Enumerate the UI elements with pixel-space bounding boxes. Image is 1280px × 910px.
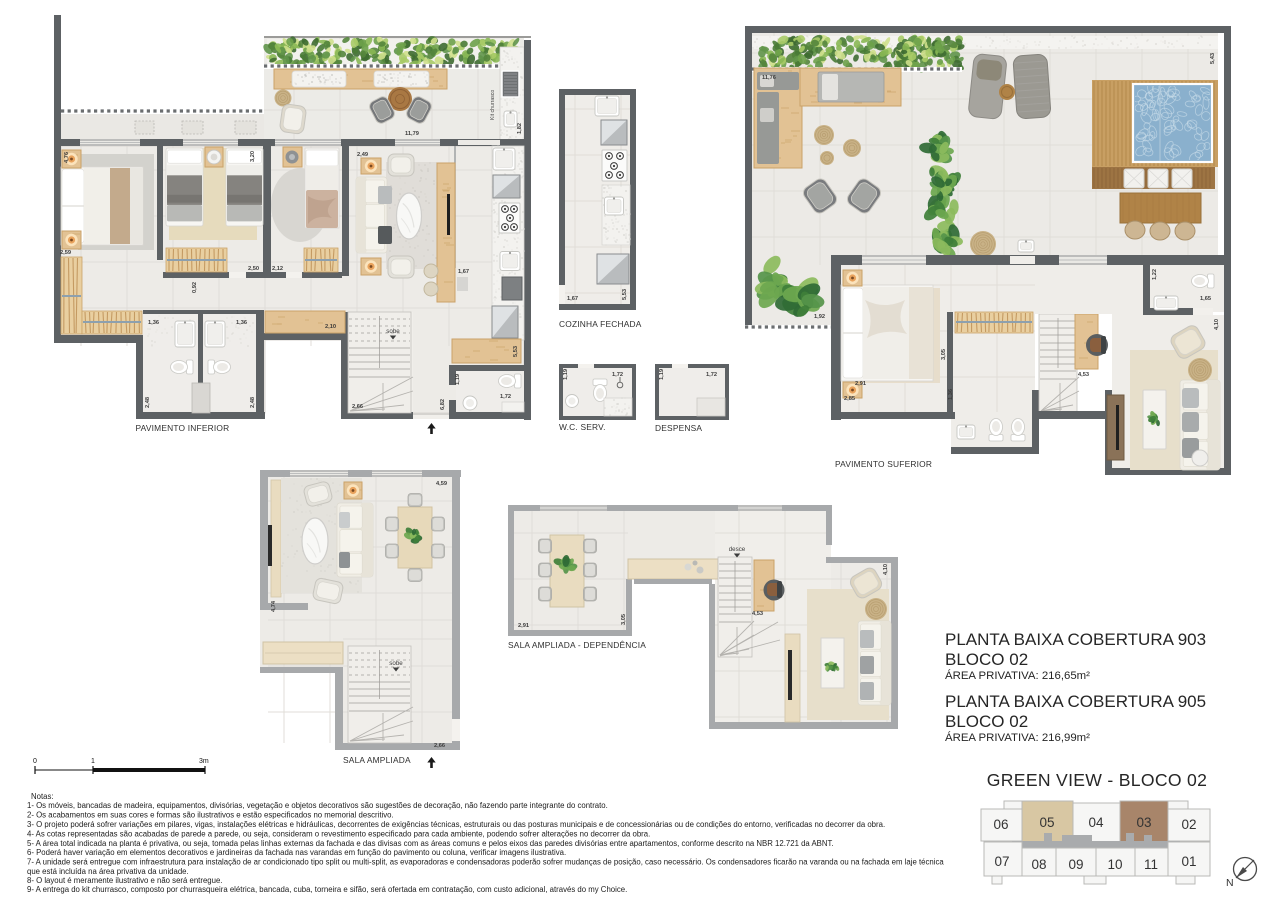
svg-text:6- Poderá haver variação em el: 6- Poderá haver variação em elementos de… — [27, 848, 566, 857]
svg-text:PLANTA BAIXA COBERTURA 905: PLANTA BAIXA COBERTURA 905 — [945, 692, 1206, 711]
svg-text:2,10: 2,10 — [325, 324, 336, 330]
svg-text:0: 0 — [33, 758, 37, 765]
svg-text:08: 08 — [1031, 857, 1046, 872]
svg-text:0,92: 0,92 — [192, 282, 198, 293]
svg-text:8- O layout é meramente ilustr: 8- O layout é meramente ilustrativo e nã… — [27, 876, 222, 885]
svg-text:11,79: 11,79 — [405, 131, 419, 137]
svg-text:DESPENSA: DESPENSA — [655, 423, 702, 433]
svg-text:1,72: 1,72 — [612, 372, 623, 378]
svg-text:W.C. SERV.: W.C. SERV. — [559, 422, 606, 432]
svg-text:7- A unidade será entregue com: 7- A unidade será entregue com infraestr… — [27, 858, 944, 867]
svg-text:1,82: 1,82 — [517, 123, 523, 134]
svg-text:PLANTA BAIXA COBERTURA 903: PLANTA BAIXA COBERTURA 903 — [945, 630, 1206, 649]
svg-text:2,91: 2,91 — [518, 623, 529, 629]
svg-text:desce: desce — [729, 546, 746, 553]
svg-text:1,19: 1,19 — [455, 374, 461, 385]
svg-text:3m: 3m — [199, 758, 209, 765]
svg-text:2,48: 2,48 — [250, 397, 256, 408]
svg-text:ÁREA PRIVATIVA: 216,99m²: ÁREA PRIVATIVA: 216,99m² — [945, 731, 1090, 744]
svg-text:03: 03 — [1136, 815, 1151, 830]
svg-text:01: 01 — [1181, 854, 1196, 869]
svg-text:4- As cotas representadas são: 4- As cotas representadas são acabadas d… — [27, 830, 650, 839]
svg-text:1,19: 1,19 — [659, 369, 665, 380]
svg-text:06: 06 — [993, 817, 1008, 832]
svg-text:2,85: 2,85 — [844, 396, 855, 402]
svg-text:4,74: 4,74 — [271, 600, 277, 612]
svg-text:5,43: 5,43 — [1210, 53, 1216, 64]
svg-text:1,36: 1,36 — [948, 389, 954, 400]
svg-text:11,76: 11,76 — [762, 75, 776, 81]
svg-text:SALA AMPLIADA - DEPENDÊNCIA: SALA AMPLIADA - DEPENDÊNCIA — [508, 640, 646, 650]
svg-text:PAVIMENTO SUFERIOR: PAVIMENTO SUFERIOR — [835, 459, 932, 469]
svg-text:Kit churrasco: Kit churrasco — [490, 90, 496, 120]
svg-text:PAVIMENTO INFERIOR: PAVIMENTO INFERIOR — [136, 423, 230, 433]
svg-text:11: 11 — [1144, 857, 1158, 872]
svg-text:5,53: 5,53 — [622, 289, 628, 300]
svg-text:BLOCO 02: BLOCO 02 — [945, 650, 1028, 669]
svg-text:04: 04 — [1088, 815, 1104, 830]
svg-text:1,72: 1,72 — [500, 394, 511, 400]
svg-text:1,19: 1,19 — [563, 369, 569, 380]
svg-text:4,10: 4,10 — [1214, 319, 1220, 330]
svg-text:3- O projeto poderá sofrer var: 3- O projeto poderá sofrer variações em … — [27, 820, 885, 829]
svg-text:4,76: 4,76 — [64, 152, 70, 163]
svg-text:1,92: 1,92 — [814, 314, 825, 320]
svg-text:4,53: 4,53 — [1078, 372, 1089, 378]
svg-text:2,12: 2,12 — [272, 266, 283, 272]
svg-text:1,36: 1,36 — [148, 320, 159, 326]
svg-text:05: 05 — [1039, 815, 1054, 830]
svg-text:6,82: 6,82 — [440, 399, 446, 410]
svg-text:2,66: 2,66 — [352, 404, 363, 410]
svg-text:02: 02 — [1181, 817, 1196, 832]
svg-text:1,22: 1,22 — [1152, 269, 1158, 280]
svg-text:1,36: 1,36 — [236, 320, 247, 326]
svg-text:4,10: 4,10 — [883, 564, 889, 575]
svg-text:N: N — [1226, 877, 1234, 889]
svg-text:sobe: sobe — [389, 660, 403, 667]
svg-text:5- A área total indicada na pl: 5- A área total indicada na planta é pri… — [27, 839, 834, 848]
svg-text:sobe: sobe — [386, 328, 400, 335]
svg-text:2,66: 2,66 — [434, 743, 445, 749]
svg-text:4,59: 4,59 — [436, 481, 447, 487]
svg-text:ÁREA PRIVATIVA: 216,65m²: ÁREA PRIVATIVA: 216,65m² — [945, 669, 1090, 682]
svg-text:1: 1 — [91, 758, 95, 765]
svg-text:09: 09 — [1068, 857, 1083, 872]
svg-text:2,91: 2,91 — [855, 381, 866, 387]
svg-text:4,53: 4,53 — [752, 611, 763, 617]
svg-text:2,59: 2,59 — [60, 250, 71, 256]
svg-text:3,20: 3,20 — [250, 151, 256, 162]
svg-text:que está incluída na área priv: que está incluída na área privativa da u… — [27, 867, 189, 876]
svg-text:2,50: 2,50 — [248, 266, 259, 272]
svg-text:07: 07 — [994, 854, 1009, 869]
svg-text:2- Os acabamentos em suas core: 2- Os acabamentos em suas cores e formas… — [27, 811, 394, 820]
svg-text:COZINHA FECHADA: COZINHA FECHADA — [559, 319, 642, 329]
svg-text:2,48: 2,48 — [145, 397, 151, 408]
svg-text:5,53: 5,53 — [513, 346, 519, 357]
svg-text:1,65: 1,65 — [1200, 296, 1211, 302]
svg-text:SALA AMPLIADA: SALA AMPLIADA — [343, 755, 411, 765]
svg-text:3,05: 3,05 — [941, 349, 947, 360]
svg-text:1,72: 1,72 — [706, 372, 717, 378]
svg-text:1,67: 1,67 — [458, 269, 469, 275]
svg-text:GREEN VIEW - BLOCO 02: GREEN VIEW - BLOCO 02 — [987, 770, 1207, 790]
svg-text:2,49: 2,49 — [357, 152, 368, 158]
svg-text:1,67: 1,67 — [567, 296, 578, 302]
svg-text:BLOCO 02: BLOCO 02 — [945, 712, 1028, 731]
svg-text:10: 10 — [1107, 857, 1122, 872]
svg-text:1- Os móveis, bancadas de made: 1- Os móveis, bancadas de madeira, equip… — [27, 801, 608, 810]
svg-text:3,05: 3,05 — [621, 614, 627, 625]
svg-text:9- A entrega do kit churrasco,: 9- A entrega do kit churrasco, composto … — [27, 885, 627, 894]
svg-text:Notas:: Notas: — [31, 792, 54, 801]
